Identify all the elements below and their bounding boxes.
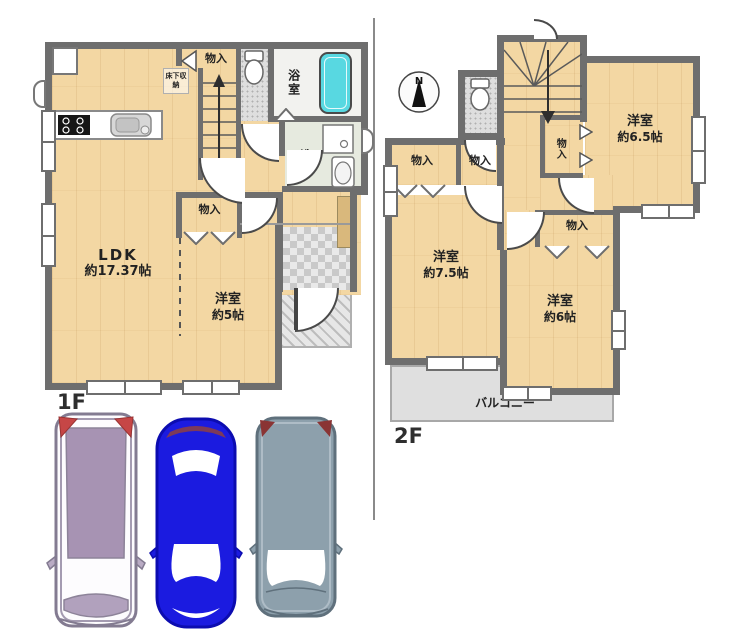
ldk-size: 約17.37帖 (62, 264, 174, 280)
entrance-door-leaf (294, 288, 298, 330)
bedroom65-size: 約6.5帖 (595, 130, 685, 145)
ldk-label: LDK 約17.37帖 (62, 246, 174, 280)
refrigerator-space (52, 47, 78, 75)
sliding-partition (179, 238, 181, 336)
floorplan-canvas: 床下収納 物入 浴室 洗面 物入 (0, 0, 732, 637)
closet-door-triangle-icon (181, 50, 197, 72)
plans-divider (373, 18, 375, 520)
folding-door-icon (544, 245, 570, 259)
wall (350, 188, 357, 292)
floor2-tag: 2F (394, 424, 423, 448)
closet-door-triangle-icon (579, 124, 593, 140)
wall (458, 70, 465, 140)
kitchen-counter (53, 110, 163, 140)
car-sedan (148, 416, 244, 630)
closet-mid-label: 物入 (182, 203, 237, 216)
bedroom75-label: 洋室 約7.5帖 (400, 250, 492, 280)
bedroom65-label: 洋室 約6.5帖 (595, 114, 685, 144)
toilet-icon (468, 78, 492, 112)
window (41, 110, 56, 172)
bedroom6-name: 洋室 (515, 294, 605, 310)
window (502, 386, 552, 401)
folding-door-icon (584, 245, 610, 259)
wall (361, 42, 368, 195)
washbasin-icon (322, 124, 354, 154)
underfloor-storage-label: 床下収納 (165, 72, 187, 90)
window (426, 356, 498, 371)
bedroom75-name: 洋室 (400, 250, 492, 266)
window (641, 204, 695, 219)
closet-door-triangle-icon (579, 152, 593, 168)
wall (268, 42, 274, 122)
closet-a-label: 物入 (396, 154, 448, 167)
bedroom6-label: 洋室 約6帖 (515, 294, 605, 324)
bedroom6-size: 約6帖 (515, 310, 605, 325)
closet-b-label: 物入 (460, 154, 500, 167)
window (86, 380, 162, 395)
closet-c-label: 物入 (542, 219, 612, 232)
folding-door-icon (420, 184, 446, 198)
wall (277, 192, 283, 292)
bedroom5-label: 洋室 約5帖 (187, 292, 269, 322)
window (41, 203, 56, 267)
stairs-down-icon (504, 42, 582, 126)
folding-door-icon (183, 231, 209, 245)
stove-icon (58, 115, 90, 135)
wall (500, 250, 507, 395)
closet-top-label: 物入 (196, 52, 236, 65)
window (691, 116, 706, 184)
window (182, 380, 240, 395)
washing-machine-icon (331, 156, 355, 188)
car-minivan (44, 410, 148, 632)
wall (45, 383, 282, 390)
bath-label: 浴室 (286, 58, 301, 108)
folding-door-icon (275, 108, 297, 121)
bedroom65-name: 洋室 (595, 114, 685, 130)
ldk-name: LDK (62, 246, 174, 264)
closet-center-label: 物入 (553, 126, 565, 172)
door-arc (534, 19, 558, 39)
bathtub-inner-rim (324, 57, 347, 109)
bedroom5-name: 洋室 (187, 292, 269, 308)
bathtub (319, 52, 352, 114)
compass-icon: N (397, 70, 441, 114)
bedroom5-size: 約5帖 (187, 308, 269, 323)
exterior-door-bump (33, 80, 46, 108)
wall (535, 210, 620, 215)
wall (580, 56, 700, 63)
bedroom75-size: 約7.5帖 (400, 266, 492, 281)
window (383, 165, 398, 217)
car-wagon (246, 414, 346, 622)
window (611, 310, 626, 350)
wall (45, 42, 368, 49)
wall (613, 206, 620, 395)
wall (279, 122, 285, 156)
folding-door-icon (210, 231, 236, 245)
toilet-icon (242, 50, 266, 86)
